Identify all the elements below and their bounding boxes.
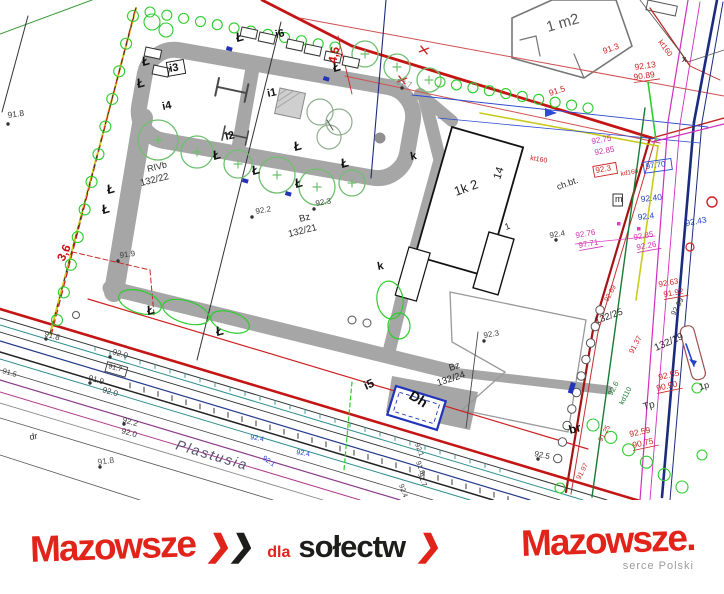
planter-box	[304, 44, 322, 56]
chevron-right-icon: ❯	[414, 532, 444, 562]
hedge-icon	[195, 17, 205, 27]
map-label: 92.1	[261, 455, 276, 469]
map-line	[652, 118, 724, 138]
map-label-group: 92.39	[669, 296, 686, 317]
map-label-group: 90.89	[633, 69, 660, 83]
map-label-group: 91.97	[576, 462, 590, 481]
map-line	[0, 403, 323, 500]
hedge-icon	[179, 13, 189, 23]
elevation-point	[555, 239, 557, 241]
dla-label: dla	[267, 544, 290, 568]
hedge-icon	[587, 419, 599, 431]
map-label-group: 92.3	[593, 162, 618, 177]
hedge-icon	[159, 23, 173, 37]
map-label-group: kd110	[619, 386, 634, 406]
map-label: 3,6	[54, 242, 74, 263]
elevation-point	[117, 260, 119, 262]
lamp-icon: Ł	[99, 200, 112, 217]
map-label: 92.3	[595, 163, 612, 175]
map-label: Tp	[642, 399, 657, 413]
map-label: 92.4	[296, 449, 311, 458]
map-label: 132/21	[287, 222, 318, 240]
manhole-icon	[558, 438, 566, 446]
elevation-point	[89, 382, 91, 384]
map-label-group: i3	[166, 60, 185, 77]
map-label: 97.70	[645, 159, 667, 171]
map-label: 92.3	[483, 328, 500, 340]
elevation-point	[251, 216, 253, 218]
manhole-icon	[73, 312, 80, 319]
map-label: dr	[29, 431, 39, 442]
chevron-right-icon: ❯	[227, 532, 257, 562]
manhole-icon	[582, 355, 590, 363]
sandbox-icon	[275, 88, 306, 119]
building-annex-left	[395, 247, 430, 301]
manhole-icon	[577, 372, 585, 380]
map-label: 91.8	[97, 455, 115, 467]
mazowsze-dla-solectw-logo: Mazowsze ❯ ❯ dla sołectw ❯	[30, 526, 442, 568]
map-label-group: 92.4	[250, 434, 265, 443]
map-label-group: ch.bt.	[555, 175, 579, 192]
map-label-group: 91.5	[1, 366, 18, 379]
map-label-group: m	[613, 194, 623, 206]
map-line	[0, 455, 140, 500]
map-label-group: 92.4	[397, 483, 408, 498]
map-label-group: 91.8	[97, 455, 115, 467]
red-survey-marker	[707, 197, 717, 207]
map-label: 91.92	[663, 287, 685, 299]
elevation-point	[123, 423, 125, 425]
hedge-icon	[697, 450, 707, 460]
red-cross-marker	[419, 46, 428, 54]
map-label: br	[567, 420, 583, 437]
manhole-icon	[554, 454, 562, 462]
map-label-group: 3,6	[54, 242, 74, 263]
map-label-group: 92.75	[591, 134, 613, 146]
map-label-group: kt160	[530, 155, 548, 165]
map-line	[648, 82, 656, 140]
map-label-group: 92.40	[640, 192, 662, 204]
play-dot-icon	[375, 133, 385, 143]
map-label-group: 92.43	[685, 214, 708, 228]
map-label-group: 92.5	[534, 449, 552, 461]
map-label-group: 92.1	[261, 455, 276, 469]
map-label-group: i1	[266, 86, 277, 100]
map-label-group: i4	[161, 99, 173, 113]
utility-cabinet	[679, 324, 707, 381]
map-line	[652, 124, 724, 142]
map-label: 92.0	[111, 347, 129, 360]
map-label: 91.5	[1, 366, 18, 379]
hedge-icon	[212, 20, 222, 30]
map-label: i6	[274, 27, 285, 41]
map-line	[2, 16, 28, 112]
map-label-group: i2	[224, 129, 235, 143]
map-label-group: k	[409, 150, 418, 163]
map-label: 92.2	[255, 204, 272, 216]
map-line	[419, 46, 428, 54]
walkway-crossbar	[237, 63, 253, 154]
map-label-group: br	[567, 420, 583, 437]
map-line	[0, 318, 607, 500]
magenta-node	[617, 222, 621, 226]
map-label-group: 92.4	[637, 210, 655, 222]
map-label: ch.bt.	[555, 175, 579, 192]
hedge-icon	[550, 97, 560, 107]
map-label: k	[376, 260, 385, 273]
elevation-point	[537, 458, 539, 460]
elevation-point	[99, 466, 101, 468]
map-label: 97.71	[578, 238, 600, 250]
map-label: 92.3	[315, 196, 332, 208]
map-line	[0, 380, 400, 500]
map-label-group: 92.0	[120, 426, 138, 439]
magenta-node	[637, 227, 641, 231]
map-line	[345, 76, 660, 143]
map-label: i3	[168, 62, 179, 75]
manhole-icon	[348, 316, 356, 324]
map-label: 91.97	[576, 462, 590, 481]
map-label: 92.4	[397, 483, 408, 498]
map-label-group: 132/21	[287, 222, 318, 240]
map-label: 91.37	[627, 334, 644, 355]
map-label: k	[409, 150, 418, 163]
map-label-group: 91.37	[627, 334, 644, 355]
map-label: 1	[503, 221, 511, 232]
map-label-group: Tp	[642, 399, 657, 413]
map-label: m	[615, 194, 623, 204]
lamp-icon: Ł	[104, 180, 117, 197]
hedge-icon	[555, 483, 565, 493]
map-label-group: k	[376, 260, 385, 273]
map-label: 92.43	[685, 214, 708, 228]
footer-banner: Mazowsze ❯ ❯ dla sołectw ❯ Mazowsze. ser…	[0, 500, 724, 594]
map-label-group: 92.3	[315, 196, 332, 208]
mazowsze-wordmark: Mazowsze.	[520, 519, 694, 562]
map-label-group: x	[682, 54, 687, 64]
map-label-group: 91.5	[548, 83, 567, 98]
planter-box	[342, 56, 360, 68]
swing-icon	[307, 99, 333, 125]
map-label: 91.7	[107, 363, 122, 374]
map-label: 92.4	[250, 434, 265, 443]
map-label: 92.5	[534, 449, 552, 461]
site-plan: ŁŁŁŁŁŁŁŁŁŁŁŁŁ91.83,691.9RIVb132/22i3i4i2…	[0, 0, 724, 500]
map-label: 91.7	[416, 472, 427, 487]
map-label-group: 92.4	[549, 228, 566, 240]
map-label-group: 91.8	[7, 108, 25, 120]
map-label-group: 92.85	[594, 145, 616, 157]
map-label: 92.39	[669, 296, 686, 317]
map-label: i1	[266, 86, 277, 100]
map-label: 92.4	[549, 228, 566, 240]
map-label-group: dr	[29, 431, 39, 442]
map-line	[480, 113, 658, 146]
map-label: i5	[362, 376, 377, 393]
hedge-icon	[583, 103, 593, 113]
manhole-icon	[586, 339, 594, 347]
red-survey-marker	[686, 243, 694, 251]
map-label-group: 91.7	[416, 472, 427, 487]
hedge-icon	[162, 10, 172, 20]
manhole-icon	[568, 405, 576, 413]
map-line	[0, 0, 92, 34]
site-plan-svg: ŁŁŁŁŁŁŁŁŁŁŁŁŁ91.83,691.9RIVb132/22i3i4i2…	[0, 0, 724, 500]
map-label: 92.26	[636, 240, 658, 252]
elevation-point	[483, 340, 485, 342]
map-label: kt160	[530, 155, 548, 165]
map-label: i4	[161, 99, 173, 113]
map-label: 1p	[698, 380, 710, 392]
manhole-icon	[363, 319, 371, 327]
map-label: 92.85	[594, 145, 616, 157]
map-line	[64, 250, 150, 270]
map-label: x	[682, 54, 687, 64]
elevation-point	[313, 208, 315, 210]
mazowsze-wordmark: Mazowsze	[29, 523, 195, 571]
map-label-group: 92.2	[255, 204, 272, 216]
sandbox-icon	[275, 88, 306, 119]
map-label-group: 92.0	[111, 347, 129, 360]
elevation-point	[7, 123, 9, 125]
map-label-group: 132/19	[653, 331, 686, 354]
map-label: kd110	[619, 386, 634, 406]
map-label: 91.9	[119, 249, 136, 260]
map-label: 92.40	[640, 192, 662, 204]
map-label: 92.0	[120, 426, 138, 439]
hedge-icon	[451, 80, 461, 90]
elevation-point	[401, 87, 403, 89]
map-label: 132/19	[653, 331, 686, 354]
map-label-group: i5	[362, 376, 377, 393]
map-line	[0, 325, 583, 500]
blue-tick	[285, 191, 292, 197]
swing-icon	[317, 125, 341, 149]
elevation-point	[45, 338, 47, 340]
map-label-group: i6	[274, 27, 285, 41]
map-label-group: 97.70	[643, 158, 672, 173]
mazowsze-serce-polski-logo: Mazowsze. serce Polski	[521, 522, 694, 572]
map-label-group: 1p	[698, 380, 710, 392]
hedge-icon	[567, 100, 577, 110]
planter-box	[286, 39, 304, 51]
map-label: 92.4	[637, 210, 655, 222]
map-label-group: 92.4	[296, 449, 311, 458]
blue-tick	[242, 178, 249, 184]
solectw-label: sołectw	[298, 529, 405, 565]
map-label: 91.5	[548, 83, 567, 98]
map-label-group: 91.9	[119, 249, 136, 260]
lamp-icon: Ł	[291, 137, 304, 154]
map-label-group: 1	[503, 221, 511, 232]
map-label: 91.25	[598, 424, 612, 443]
map-label: 91.8	[7, 108, 25, 120]
map-label: 92.75	[591, 134, 613, 146]
map-line	[592, 330, 615, 497]
map-label-group: 92.3	[483, 328, 500, 340]
elevation-point	[109, 356, 111, 358]
map-label-group: 91.25	[598, 424, 612, 443]
map-label: i2	[224, 129, 235, 143]
hedge-icon	[676, 481, 688, 493]
